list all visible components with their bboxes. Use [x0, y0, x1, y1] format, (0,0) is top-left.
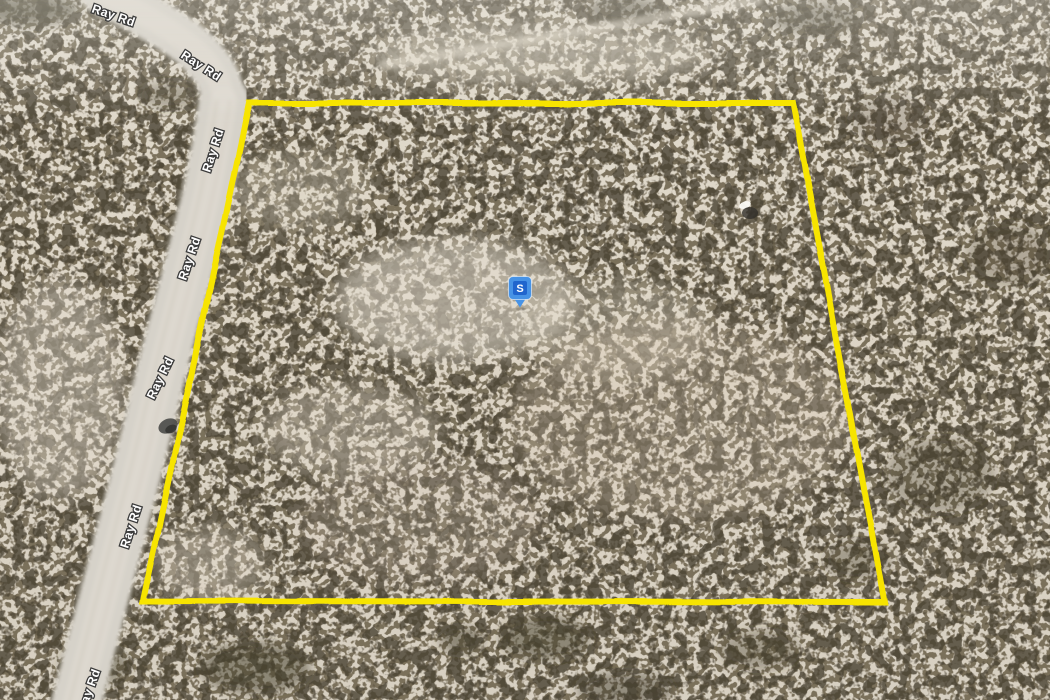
satellite-map-view[interactable]: Ray RdRay RdRay RdRay RdRay RdRay RdRay … [0, 0, 1050, 700]
map-canvas: Ray RdRay RdRay RdRay RdRay RdRay RdRay … [0, 0, 1050, 700]
marker-letter: S [516, 283, 523, 295]
distance-haze [0, 0, 1050, 130]
marker-shadow [516, 307, 526, 310]
